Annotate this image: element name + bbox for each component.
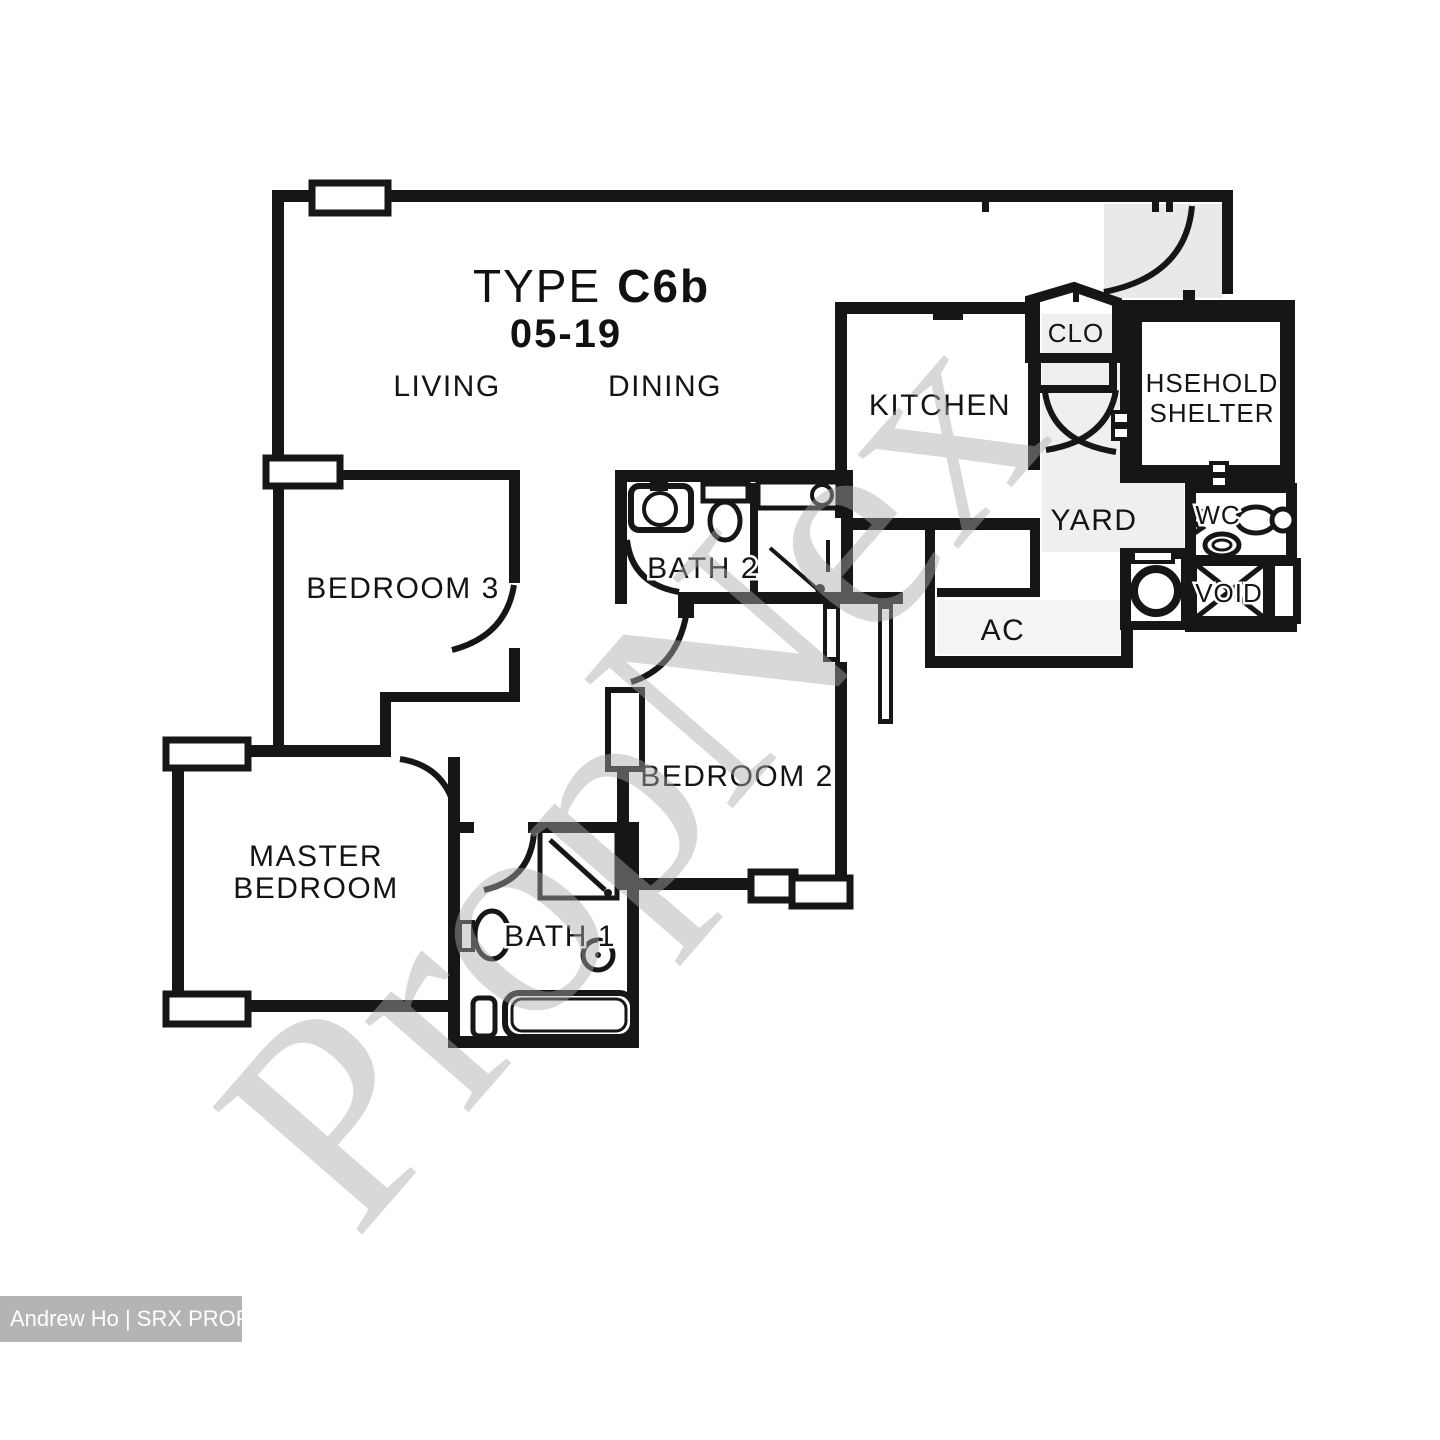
wc-toilet-tank [1272, 509, 1294, 531]
watermark: PropNex [154, 262, 1105, 1285]
plan-type-title: TYPEC6b [473, 260, 710, 312]
wall-left-living [272, 190, 284, 468]
floor-plan-page: TYPEC6b 05-19 LIVING DINING KITCHEN CLO … [0, 0, 1440, 1440]
label-bedroom3: BEDROOM 3 [306, 572, 500, 605]
plan-type-word: TYPE [473, 260, 601, 312]
shelter-connector [1211, 463, 1227, 474]
wc-toilet-bowl [1237, 507, 1275, 533]
wall-wc-top [1185, 483, 1297, 493]
attribution-bar: Andrew Ho | SRX PROPERTY [0, 1296, 242, 1342]
wall-tick [982, 202, 989, 212]
wall-master-left [172, 767, 184, 998]
wall-top [272, 190, 1233, 202]
label-shelter-1: HSEHOLD [1146, 368, 1279, 398]
wall-bedroom3-right-upper [509, 470, 520, 583]
window-master-top [166, 740, 248, 768]
duct-box [1271, 562, 1297, 620]
unit-number: 05-19 [510, 312, 622, 356]
wall-bedroom3-top [337, 470, 520, 480]
washer-lid [1133, 551, 1173, 562]
wall-master-top [245, 745, 385, 757]
window-living-top [312, 183, 388, 213]
wc-basin [1205, 534, 1239, 556]
label-ac: AC [981, 614, 1026, 647]
label-wc: WC [1195, 500, 1240, 530]
wall-tick [1152, 202, 1159, 212]
wall-left-bedroom3 [273, 486, 284, 750]
wall-tick [1166, 202, 1173, 212]
shelter-connector [1113, 427, 1129, 439]
wall-ac-right [1121, 620, 1133, 668]
window-bedroom2-corner [792, 878, 850, 906]
shelter-connector [1211, 476, 1227, 487]
wall-clo-bottom [1033, 353, 1117, 363]
wall-foyer-right [1222, 202, 1233, 294]
label-dining: DINING [608, 370, 722, 403]
label-shelter-2: SHELTER [1150, 398, 1275, 428]
foyer-floor [1104, 204, 1222, 298]
wall-ac-bottom [925, 656, 1133, 668]
attribution-text: Andrew Ho | SRX PROPERTY [0, 1306, 309, 1332]
window-living-left [266, 458, 340, 486]
label-void: VOID [1195, 578, 1263, 608]
wall-kitchen-tick [933, 312, 963, 320]
floor-plan-drawing: TYPEC6b 05-19 LIVING DINING KITCHEN CLO … [0, 0, 1440, 1440]
label-clo: CLO [1048, 318, 1104, 348]
shelter-connector [1113, 412, 1129, 424]
washer-drum [1134, 569, 1178, 613]
plan-type-code: C6b [617, 260, 710, 312]
label-living: LIVING [393, 370, 500, 403]
